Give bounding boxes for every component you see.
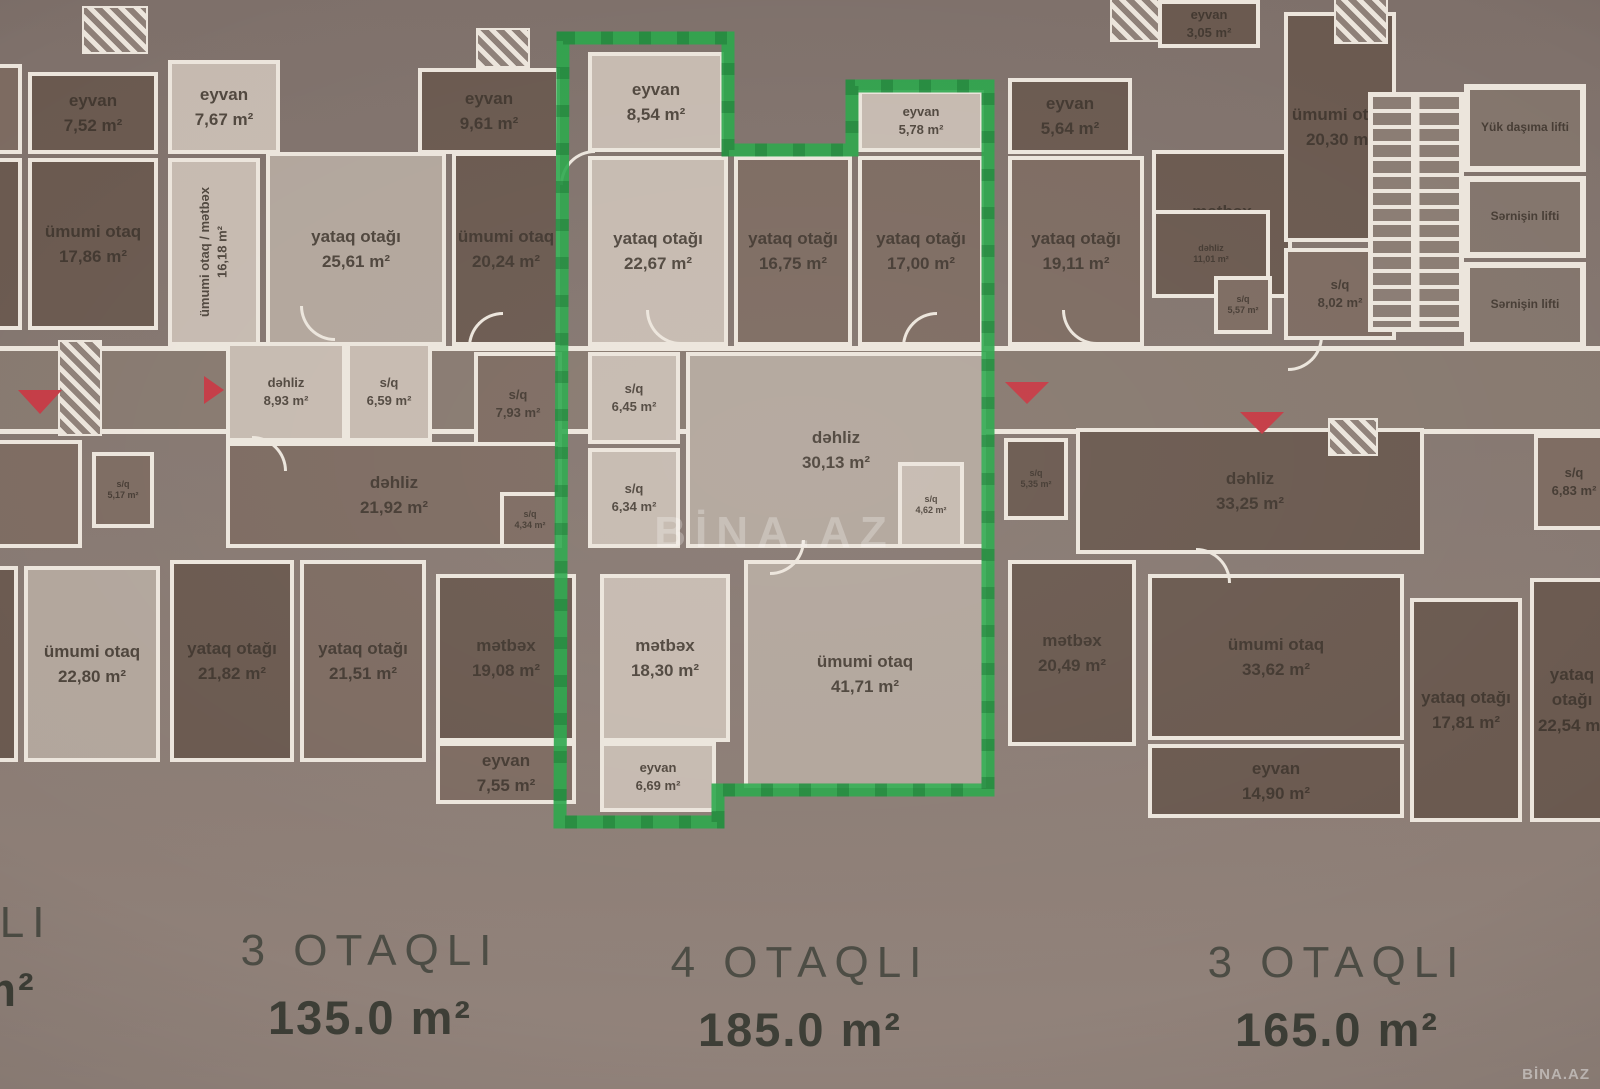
room-area: 17,86 m² <box>45 244 141 270</box>
room-s-q: s/q5,57 m² <box>1214 276 1272 334</box>
room-area: 22,54 m² <box>1534 713 1600 739</box>
room-area: 20,49 m² <box>1038 653 1106 679</box>
room-m-tb-x: mətbəx20,49 m² <box>1008 560 1136 746</box>
room-label: yataq otağı19,11 m² <box>1031 226 1121 277</box>
room-area: 20,24 m² <box>458 249 554 275</box>
room-label: dəhliz21,92 m² <box>360 470 428 521</box>
room-area: 22,80 m² <box>44 664 140 690</box>
room-eyvan: eyvan5,78 m² <box>858 90 984 152</box>
unit-rooms-label: 4 OTAQLI <box>600 938 1000 988</box>
room-mumi-otaq: ümumi otaq33,62 m² <box>1148 574 1404 740</box>
wall-hatch <box>84 8 146 52</box>
room-s-q: s/q5,35 m² <box>1004 438 1068 520</box>
room-eyvan: eyvan5,64 m² <box>1008 78 1132 154</box>
room-mumi-otaq: ümumi otaq20,24 m² <box>452 152 560 346</box>
wall-hatch <box>1330 420 1376 454</box>
room-area: 5,57 m² <box>1227 305 1258 316</box>
room-eyvan: eyvan7,67 m² <box>168 60 280 154</box>
room-area: 19,08 m² <box>472 658 540 684</box>
room-unlabeled <box>0 440 82 548</box>
room-area: 22,67 m² <box>613 251 703 277</box>
room-area: 6,45 m² <box>612 398 657 416</box>
lift-room: Sərnişin lifti <box>1464 262 1586 348</box>
wall-hatch <box>60 342 100 434</box>
room-area: 6,69 m² <box>636 777 681 795</box>
room-area: 18,30 m² <box>631 658 699 684</box>
room-area: 21,51 m² <box>318 661 408 687</box>
room-label: eyvan9,61 m² <box>460 86 519 137</box>
room-label: ümumi otaq17,86 m² <box>45 219 141 270</box>
room-eyvan: eyvan7,52 m² <box>28 72 158 154</box>
wall-hatch <box>1336 0 1386 42</box>
room-s-q: s/q6,83 m² <box>1534 434 1600 530</box>
room-label: s/q5,17 m² <box>107 479 138 502</box>
room-yataq-ota: yataq otağı21,82 m² <box>170 560 294 762</box>
room-label: ümumi otaq20,24 m² <box>458 224 554 275</box>
room-area: 8,54 m² <box>627 102 686 128</box>
room-label: yataq otağı25,61 m² <box>311 224 401 275</box>
room-area: 41,71 m² <box>817 674 913 700</box>
staircase <box>1368 92 1464 332</box>
room-unlabeled <box>0 64 22 154</box>
room-label: eyvan14,90 m² <box>1242 756 1310 807</box>
watermark: BİNA.AZ <box>625 508 925 558</box>
floorplan-page: eyvan7,52 m²eyvan7,67 m²eyvan9,61 m²eyva… <box>0 0 1600 1089</box>
room-label: mətbəx18,30 m² <box>631 633 699 684</box>
room-label: eyvan8,54 m² <box>627 77 686 128</box>
room-label: mətbəx19,08 m² <box>472 633 540 684</box>
room-label: Yük daşıma lifti <box>1481 120 1569 136</box>
room-area: 21,82 m² <box>187 661 277 687</box>
room-label: mətbəx20,49 m² <box>1038 628 1106 679</box>
lift-room: Sərnişin lifti <box>1464 176 1586 258</box>
room-label: dəhliz30,13 m² <box>802 425 870 476</box>
room-mumi-otaq: ümumi otaq41,71 m² <box>744 560 986 788</box>
room-s-q: s/q6,45 m² <box>588 352 680 444</box>
room-label: s/q6,83 m² <box>1552 464 1597 499</box>
room-area: 8,93 m² <box>264 392 309 410</box>
room-label: eyvan6,69 m² <box>636 759 681 794</box>
room-s-q: s/q4,34 m² <box>500 492 560 548</box>
room-area: 7,93 m² <box>496 404 541 422</box>
room-area: 16,75 m² <box>748 251 838 277</box>
unit-caption-135: 3 OTAQLI 135.0 m² <box>170 926 570 1045</box>
room-area: 3,05 m² <box>1187 24 1232 42</box>
room-label: eyvan5,64 m² <box>1041 91 1100 142</box>
unit-rooms-label: 3 OTAQLI <box>170 926 570 976</box>
unit-area-label: 135.0 m² <box>170 990 570 1045</box>
room-label: eyvan7,52 m² <box>64 88 123 139</box>
room-eyvan: eyvan14,90 m² <box>1148 744 1404 818</box>
room-label: s/q5,35 m² <box>1020 468 1051 491</box>
room-label: yataq otağı21,82 m² <box>187 636 277 687</box>
unit-rooms-label: QLI <box>0 898 70 948</box>
room-area: 17,00 m² <box>876 251 966 277</box>
unit-caption-cut: QLI m² <box>0 898 70 1017</box>
room-label: yataq otağı17,81 m² <box>1421 685 1511 736</box>
room-label: dəhliz8,93 m² <box>264 374 309 409</box>
room-label: s/q5,57 m² <box>1227 294 1258 317</box>
room-label: dəhliz33,25 m² <box>1216 466 1284 517</box>
room-area: 33,62 m² <box>1228 657 1324 683</box>
room-yataq-ota: yataq otağı22,54 m² <box>1530 578 1600 822</box>
room-area: 6,83 m² <box>1552 482 1597 500</box>
room-eyvan: eyvan7,55 m² <box>436 742 576 804</box>
room-eyvan: eyvan8,54 m² <box>588 52 724 152</box>
room-label: eyvan7,55 m² <box>477 748 536 799</box>
room-yataq-ota: yataq otağı16,75 m² <box>734 156 852 346</box>
room-area: 7,55 m² <box>477 773 536 799</box>
room-label: eyvan5,78 m² <box>899 103 944 138</box>
room-label: yataq otağı22,54 m² <box>1534 662 1600 739</box>
room-area: 6,59 m² <box>367 392 412 410</box>
room-area: 5,78 m² <box>899 121 944 139</box>
room-area: 4,34 m² <box>514 520 545 531</box>
room-label: yataq otağı22,67 m² <box>613 226 703 277</box>
room-label: ümumi otaq / mətbəx16,18 m² <box>196 187 231 317</box>
unit-rooms-label: 3 OTAQLI <box>1137 938 1537 988</box>
room-label: yataq otağı16,75 m² <box>748 226 838 277</box>
room-mumi-otaq-m-tb-x: ümumi otaq / mətbəx16,18 m² <box>168 158 260 346</box>
room-label: eyvan7,67 m² <box>195 82 254 133</box>
room-label: ümumi otaq22,80 m² <box>44 639 140 690</box>
room-m-tb-x: mətbəx19,08 m² <box>436 574 576 742</box>
room-area: 30,13 m² <box>802 450 870 476</box>
room-yataq-ota: yataq otağı21,51 m² <box>300 560 426 762</box>
unit-area-label: 185.0 m² <box>600 1002 1000 1057</box>
room-unlabeled <box>0 566 18 762</box>
room-label: dəhliz11,01 m² <box>1193 243 1229 266</box>
room-label: Sərnişin lifti <box>1491 297 1560 313</box>
room-mumi-otaq: ümumi otaq22,80 m² <box>24 566 160 762</box>
room-area: 9,61 m² <box>460 111 519 137</box>
room-label: s/q7,93 m² <box>496 386 541 421</box>
unit-caption-165: 3 OTAQLI 165.0 m² <box>1137 938 1537 1057</box>
room-s-q: s/q7,93 m² <box>474 352 562 456</box>
room-label: s/q6,59 m² <box>367 374 412 409</box>
room-yataq-ota: yataq otağı25,61 m² <box>266 152 446 346</box>
room-label: Sərnişin lifti <box>1491 209 1560 225</box>
room-m-tb-x: mətbəx18,30 m² <box>600 574 730 742</box>
room-area: 14,90 m² <box>1242 781 1310 807</box>
unit-area-label: 165.0 m² <box>1137 1002 1537 1057</box>
lift-room: Yük daşıma lifti <box>1464 84 1586 172</box>
room-label: ümumi otaq33,62 m² <box>1228 632 1324 683</box>
wall-hatch <box>1112 0 1158 40</box>
room-yataq-ota: yataq otağı17,81 m² <box>1410 598 1522 822</box>
room-area: 21,92 m² <box>360 495 428 521</box>
room-label: eyvan3,05 m² <box>1187 6 1232 41</box>
room-d-hliz: dəhliz8,93 m² <box>226 342 346 442</box>
room-label: ümumi otaq41,71 m² <box>817 649 913 700</box>
room-s-q: s/q5,17 m² <box>92 452 154 528</box>
room-area: 16,18 m² <box>214 187 232 317</box>
room-mumi-otaq: ümumi otaq17,86 m² <box>28 158 158 330</box>
door-arc <box>560 150 595 185</box>
room-area: 8,02 m² <box>1318 294 1363 312</box>
room-area: 5,35 m² <box>1020 479 1051 490</box>
room-area: 25,61 m² <box>311 249 401 275</box>
wall-hatch <box>478 30 528 66</box>
room-area: 7,52 m² <box>64 113 123 139</box>
room-area: 5,64 m² <box>1041 116 1100 142</box>
room-eyvan: eyvan9,61 m² <box>418 68 560 154</box>
room-eyvan: eyvan3,05 m² <box>1158 0 1260 48</box>
room-label: yataq otağı17,00 m² <box>876 226 966 277</box>
room-area: 11,01 m² <box>1193 254 1229 265</box>
room-s-q: s/q6,59 m² <box>346 342 432 442</box>
room-eyvan: eyvan6,69 m² <box>600 742 716 812</box>
room-area: 19,11 m² <box>1031 251 1121 277</box>
room-label: s/q4,34 m² <box>514 509 545 532</box>
room-area: 7,67 m² <box>195 107 254 133</box>
room-area: 33,25 m² <box>1216 491 1284 517</box>
room-unlabeled <box>0 158 22 330</box>
watermark: BİNA.AZ <box>1522 1066 1590 1083</box>
room-label: s/q6,45 m² <box>612 380 657 415</box>
room-label: yataq otağı21,51 m² <box>318 636 408 687</box>
room-area: 17,81 m² <box>1421 710 1511 736</box>
unit-caption-185: 4 OTAQLI 185.0 m² <box>600 938 1000 1057</box>
unit-area-label: m² <box>0 962 70 1017</box>
room-area: 5,17 m² <box>107 490 138 501</box>
room-label: s/q8,02 m² <box>1318 276 1363 311</box>
